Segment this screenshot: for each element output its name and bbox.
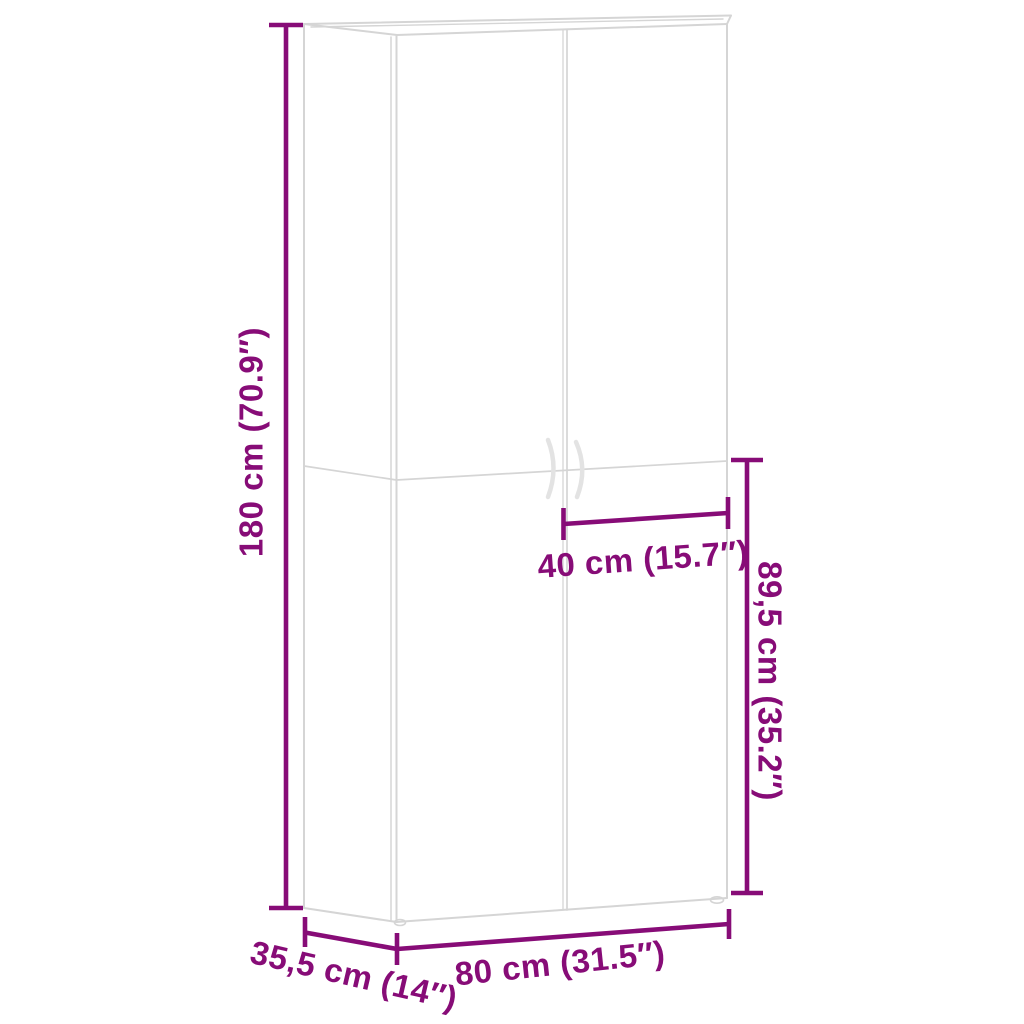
- dimension-lines: [269, 25, 763, 965]
- left-door-handle-icon: [548, 440, 554, 497]
- height-label: 180 cm (70.9″): [233, 327, 270, 557]
- cabinet-outline: [304, 16, 731, 926]
- diagram-svg: 180 cm (70.9″) 40 cm (15.7″) 89,5 cm (35…: [0, 0, 1024, 1024]
- dimension-diagram: 180 cm (70.9″) 40 cm (15.7″) 89,5 cm (35…: [0, 0, 1024, 1024]
- cabinet-seam-front: [397, 461, 728, 480]
- cabinet-top-right-edge: [727, 16, 731, 25]
- lower-height-label: 89,5 cm (35.2″): [752, 561, 789, 801]
- door-width-label: 40 cm (15.7″): [536, 533, 749, 585]
- dimension-height-line: [269, 25, 303, 908]
- dimension-door-width-line: [564, 497, 729, 540]
- cabinet-top-front-edge: [397, 24, 727, 35]
- cabinet-seam-side: [304, 466, 397, 480]
- cabinet-bottom-front-edge: [397, 898, 728, 922]
- door-handles: [548, 440, 582, 497]
- cabinet-bottom-side-edge: [304, 908, 397, 922]
- dimension-width-line: [397, 909, 729, 949]
